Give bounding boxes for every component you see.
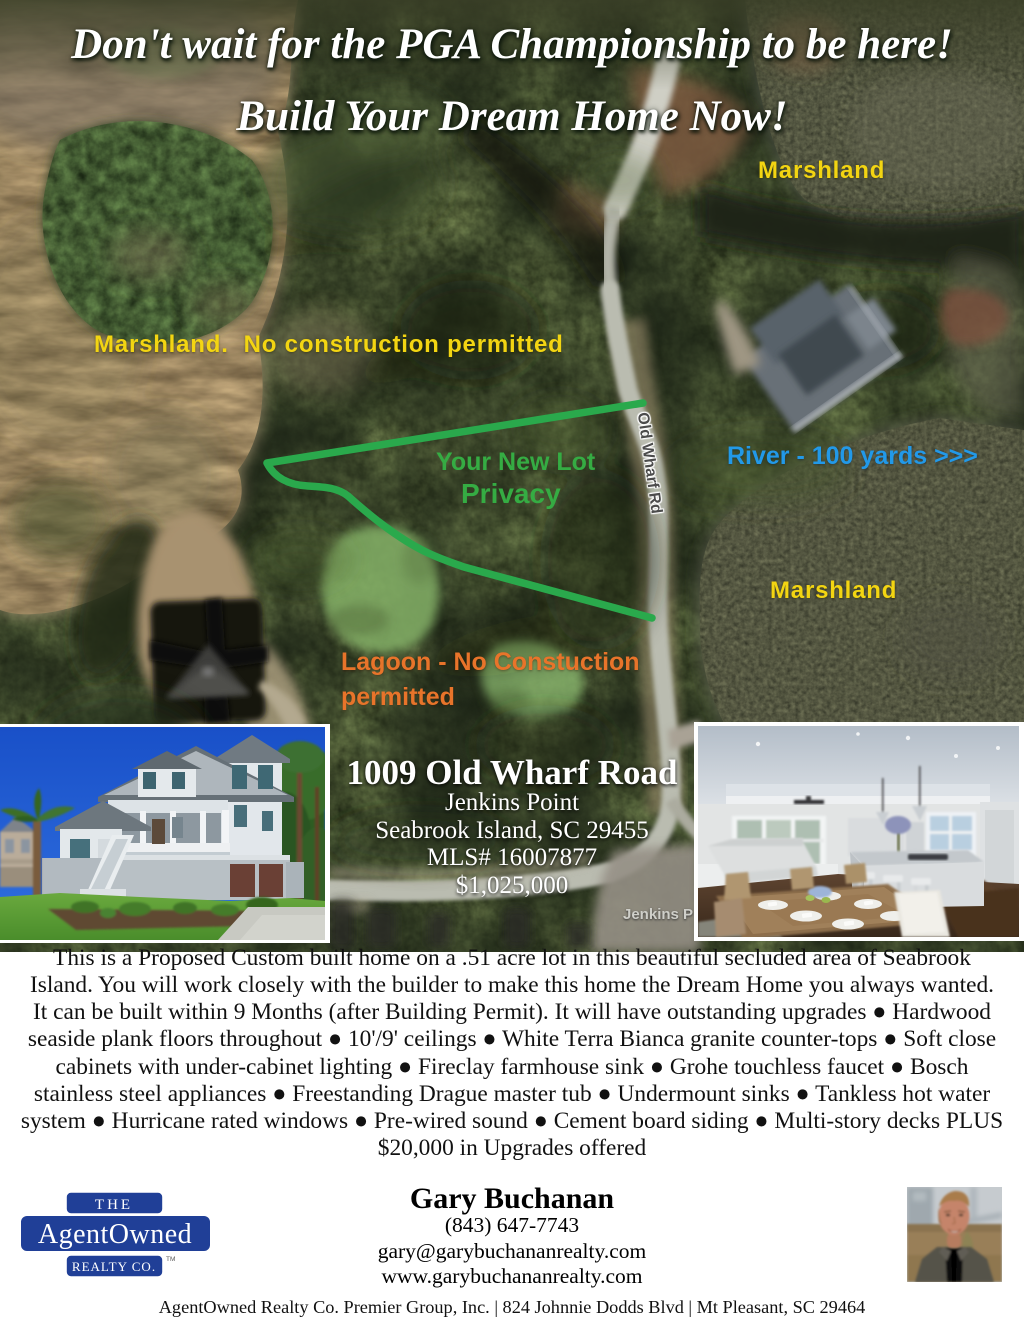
svg-text:TM: TM	[166, 1256, 175, 1263]
svg-text:THE: THE	[95, 1197, 133, 1213]
svg-text:AgentOwned: AgentOwned	[38, 1219, 192, 1250]
svg-text:REALTY CO.: REALTY CO.	[72, 1259, 156, 1274]
